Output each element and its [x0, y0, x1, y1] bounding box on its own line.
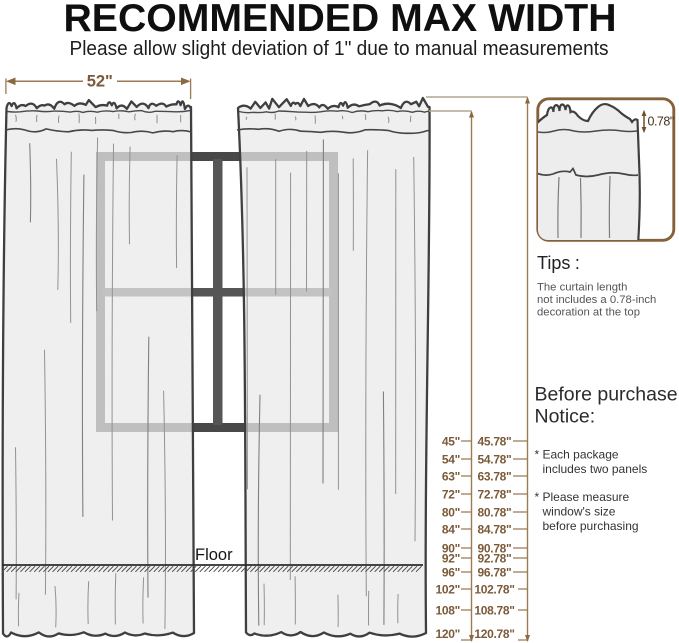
svg-text:not includes a 0.78-inch: not includes a 0.78-inch: [537, 294, 656, 306]
svg-text:102": 102": [435, 583, 460, 597]
svg-text:*: *: [535, 448, 540, 462]
svg-text:The curtain length: The curtain length: [537, 282, 627, 294]
svg-text:72.78": 72.78": [478, 488, 512, 502]
svg-text:120.78": 120.78": [474, 627, 514, 641]
svg-text:108": 108": [435, 604, 460, 618]
svg-text:80.78": 80.78": [478, 506, 512, 520]
svg-text:54.78": 54.78": [478, 453, 512, 467]
svg-text:108.78": 108.78": [474, 604, 514, 618]
svg-text:before purchasing: before purchasing: [543, 519, 639, 533]
svg-text:96": 96": [442, 566, 460, 580]
svg-text:45": 45": [442, 435, 460, 449]
svg-text:0.78": 0.78": [648, 115, 674, 129]
svg-text:63.78": 63.78": [478, 470, 512, 484]
svg-text:54": 54": [442, 453, 460, 467]
svg-text:Please measure: Please measure: [543, 490, 630, 504]
svg-text:45.78": 45.78": [478, 435, 512, 449]
svg-text:63": 63": [442, 470, 460, 484]
svg-text:96.78": 96.78": [478, 566, 512, 580]
svg-text:window's size: window's size: [542, 505, 616, 519]
svg-text:84.78": 84.78": [478, 523, 512, 537]
svg-text:92.78": 92.78": [478, 552, 512, 566]
svg-text:decoration at the top: decoration at the top: [537, 307, 640, 319]
svg-text:Before purchase: Before purchase: [535, 384, 678, 406]
svg-text:52": 52": [87, 73, 113, 91]
svg-text:Notice:: Notice:: [535, 406, 596, 428]
svg-text:92": 92": [442, 552, 460, 566]
svg-text:72": 72": [442, 488, 460, 502]
svg-text:Please allow slight deviation: Please allow slight deviation of 1" due …: [70, 38, 609, 60]
svg-text:RECOMMENDED MAX WIDTH: RECOMMENDED MAX WIDTH: [64, 0, 617, 40]
svg-text:84": 84": [442, 523, 460, 537]
svg-text:includes two panels: includes two panels: [543, 462, 648, 476]
svg-text:Floor: Floor: [195, 546, 233, 564]
svg-text:102.78": 102.78": [474, 583, 514, 597]
svg-text:80": 80": [442, 506, 460, 520]
svg-text:*: *: [535, 490, 540, 504]
svg-text:Each package: Each package: [543, 448, 619, 462]
svg-text:120": 120": [435, 627, 460, 641]
